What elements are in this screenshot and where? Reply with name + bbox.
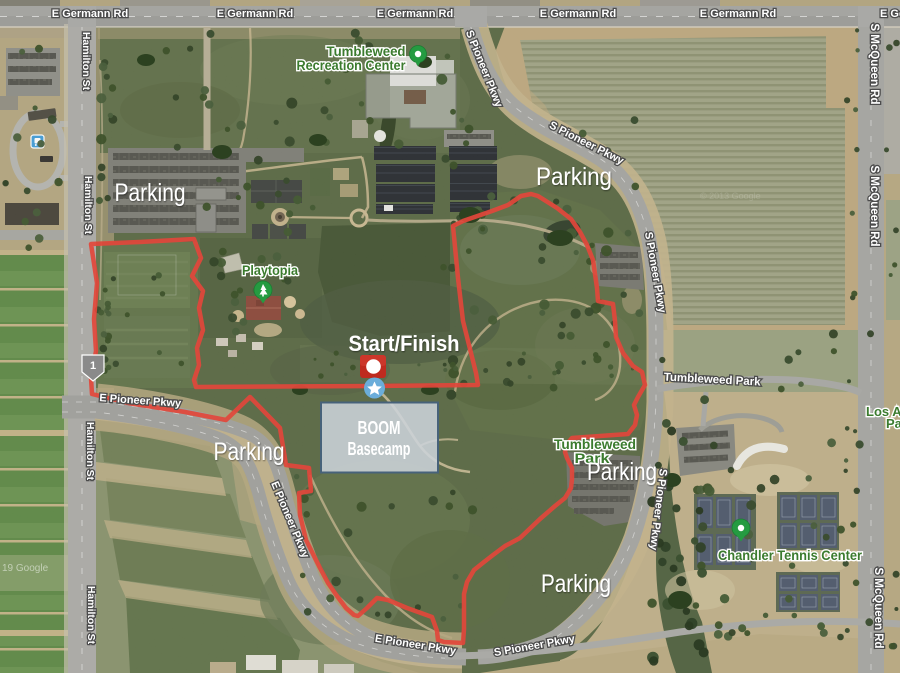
svg-text:S McQueen Rd: S McQueen Rd	[868, 23, 880, 104]
svg-text:S McQueen Rd: S McQueen Rd	[872, 567, 884, 648]
svg-text:Basecamp: Basecamp	[348, 438, 411, 459]
svg-text:E Germann Rd: E Germann Rd	[377, 8, 453, 20]
svg-text:E Germann Rd: E Germann Rd	[540, 8, 616, 20]
svg-text:E Germann Rd: E Germann Rd	[217, 8, 293, 20]
svg-text:Recreation Center: Recreation Center	[297, 58, 407, 73]
svg-text:Hamilton St: Hamilton St	[84, 422, 96, 481]
svg-text:Hamilton St: Hamilton St	[85, 586, 97, 645]
svg-text:Parking: Parking	[541, 570, 611, 598]
svg-text:Hamilton St: Hamilton St	[80, 32, 92, 91]
svg-text:E Germ: E Germ	[880, 8, 900, 20]
svg-text:Park: Park	[886, 416, 900, 431]
svg-text:S McQueen Rd: S McQueen Rd	[868, 165, 880, 246]
svg-text:BOOM: BOOM	[358, 417, 401, 438]
svg-text:Parking: Parking	[115, 179, 186, 207]
svg-text:Playtopia: Playtopia	[242, 263, 298, 278]
svg-text:Hamilton St: Hamilton St	[82, 176, 94, 235]
svg-text:E Germann Rd: E Germann Rd	[52, 8, 128, 20]
svg-text:Chandler Tennis Center: Chandler Tennis Center	[718, 548, 863, 563]
svg-text:Tumbleweed: Tumbleweed	[327, 44, 406, 59]
svg-text:Parking: Parking	[587, 458, 657, 486]
svg-text:E Germann Rd: E Germann Rd	[700, 8, 776, 20]
svg-text:Parking: Parking	[214, 438, 285, 466]
svg-text:Parking: Parking	[536, 163, 612, 191]
svg-text:Start/Finish: Start/Finish	[349, 331, 460, 356]
svg-text:© 2013 Google: © 2013 Google	[700, 191, 761, 201]
svg-text:1: 1	[90, 360, 96, 372]
svg-text:Tumbleweed: Tumbleweed	[554, 437, 636, 452]
svg-text:19 Google: 19 Google	[2, 563, 49, 574]
